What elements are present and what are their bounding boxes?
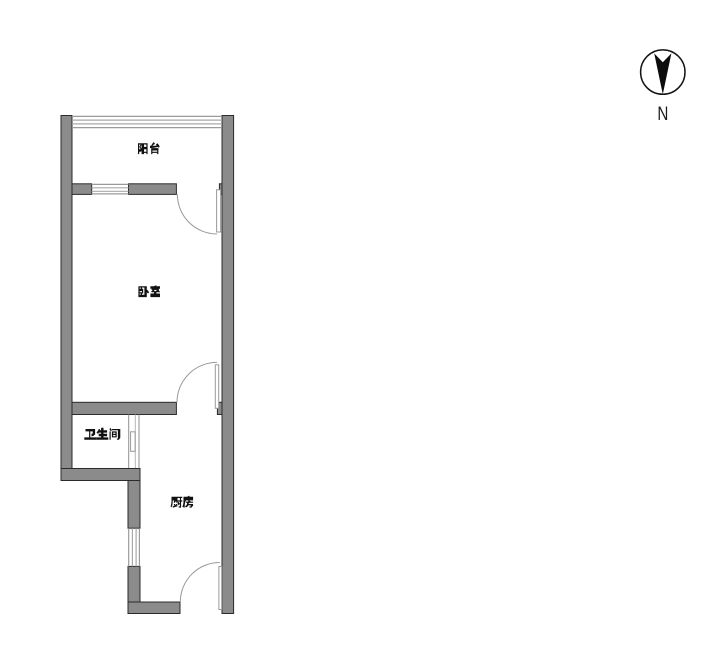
svg-text:N: N — [657, 102, 668, 124]
